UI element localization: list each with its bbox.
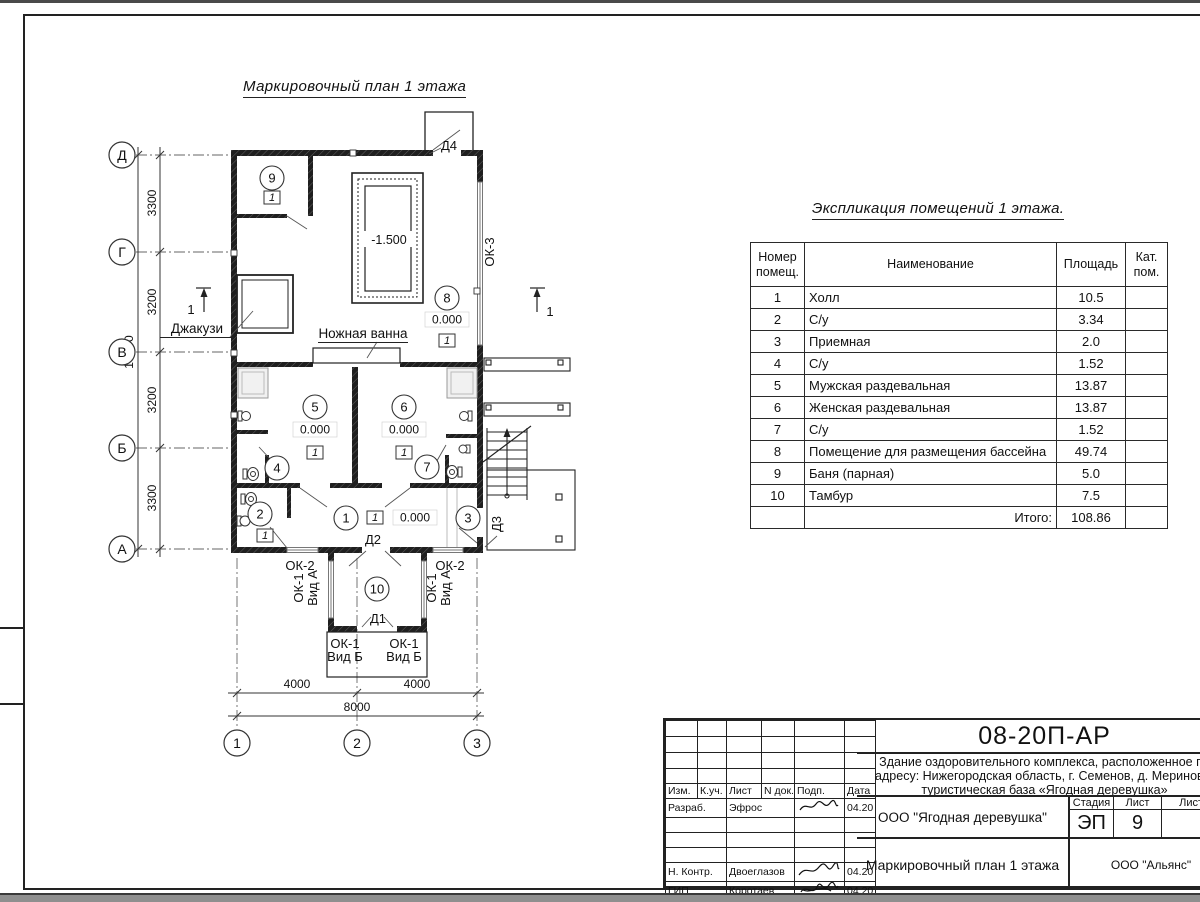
table-row: 1Холл10.5 bbox=[751, 287, 1168, 309]
dim-8000: 8000 bbox=[344, 700, 371, 714]
table-row: 4С/у1.52 bbox=[751, 353, 1168, 375]
label-ok1b-left-2: Вид Б bbox=[327, 649, 363, 664]
sheets-total bbox=[1162, 810, 1200, 839]
table-total-row: Итого: 108.86 bbox=[751, 507, 1168, 529]
table-row: 5Мужская раздевальная13.87 bbox=[751, 375, 1168, 397]
sign-row bbox=[666, 833, 876, 848]
svg-text:-1.500: -1.500 bbox=[371, 233, 406, 247]
project-line-1: Здание оздоровительного комплекса, распо… bbox=[857, 755, 1200, 769]
document-title: Маркировочный план 1 этажа bbox=[857, 839, 1070, 890]
jacuzzi bbox=[237, 275, 293, 333]
table-row: 3Приемная2.0 bbox=[751, 331, 1168, 353]
sign-row: Разраб. Эфрос 04.20 bbox=[666, 799, 876, 818]
signature bbox=[795, 799, 845, 818]
total-label: Итого: bbox=[805, 507, 1057, 529]
explication-table: Номер помещ. Наименование Площадь Кат. п… bbox=[750, 242, 1168, 529]
equipment-labels: Джакузи Ножная ванна bbox=[160, 321, 408, 343]
svg-text:3: 3 bbox=[473, 735, 481, 751]
label-ok1a-right-1: ОК-1 bbox=[424, 573, 439, 602]
sign-row: Н. Контр. Двоеглазов 04.20 bbox=[666, 863, 876, 882]
svg-text:1: 1 bbox=[262, 530, 268, 542]
revision-table: Изм.К.уч. ЛистN док. Подп.Дата Разраб. Э… bbox=[665, 720, 876, 901]
project-line-2: адресу: Нижегородская область, г. Семено… bbox=[857, 769, 1200, 783]
dim-3200-b: 3200 bbox=[145, 386, 159, 413]
svg-text:1: 1 bbox=[372, 512, 378, 524]
svg-text:8: 8 bbox=[443, 291, 450, 306]
sheets-label: Листов bbox=[1162, 797, 1200, 810]
label-ok3: ОК-3 bbox=[482, 237, 497, 266]
svg-text:6: 6 bbox=[400, 400, 407, 415]
svg-text:0.000: 0.000 bbox=[300, 423, 330, 437]
axis-bubbles: Д Г В Б А 1 2 3 bbox=[109, 142, 490, 756]
dim-3300-a: 3300 bbox=[145, 189, 159, 216]
svg-text:2: 2 bbox=[256, 507, 263, 522]
label-jacuzzi: Джакузи bbox=[171, 321, 223, 336]
foot-bath bbox=[313, 348, 400, 363]
window-ok2-left bbox=[287, 548, 318, 553]
dim-3300-b: 3300 bbox=[145, 484, 159, 511]
svg-text:1: 1 bbox=[233, 735, 241, 751]
pool-level: -1.500 bbox=[364, 231, 413, 247]
col-header-area: Площадь bbox=[1057, 243, 1126, 287]
document-code: 08-20П-АР bbox=[857, 720, 1200, 754]
drawing-sheet: { "sheet": { "plan_title": "Маркировочны… bbox=[0, 0, 1200, 900]
svg-text:7: 7 bbox=[423, 460, 430, 475]
signature bbox=[795, 863, 845, 882]
sheet-number: 9 bbox=[1114, 810, 1162, 839]
svg-text:1: 1 bbox=[342, 511, 349, 526]
label-ok1a-left-1: ОК-1 bbox=[291, 573, 306, 602]
sign-row bbox=[666, 818, 876, 833]
svg-text:1: 1 bbox=[444, 335, 450, 347]
revision-header-row: Изм.К.уч. ЛистN док. Подп.Дата bbox=[666, 784, 876, 799]
svg-text:А: А bbox=[117, 541, 127, 557]
organization-name: ООО "Альянс" bbox=[1070, 839, 1200, 890]
project-line-3: туристическая база «Ягодная деревушка» bbox=[857, 783, 1200, 797]
svg-text:0.000: 0.000 bbox=[400, 511, 430, 525]
dim-3200-a: 3200 bbox=[145, 288, 159, 315]
project-description: Здание оздоровительного комплекса, распо… bbox=[857, 754, 1200, 797]
title-block: Изм.К.уч. ЛистN док. Подп.Дата Разраб. Э… bbox=[663, 718, 1200, 888]
table-row: 8Помещение для размещения бассейна49.74 bbox=[751, 441, 1168, 463]
svg-text:1: 1 bbox=[401, 447, 407, 459]
sheet-bottom-edge bbox=[0, 893, 1200, 902]
table-row: 2С/у3.34 bbox=[751, 309, 1168, 331]
table-row: 7С/у1.52 bbox=[751, 419, 1168, 441]
label-ok1b-right-2: Вид Б bbox=[386, 649, 422, 664]
svg-text:0.000: 0.000 bbox=[432, 313, 462, 327]
stage-value: ЭП bbox=[1070, 810, 1114, 839]
svg-text:10: 10 bbox=[370, 582, 384, 597]
label-d2: Д2 bbox=[365, 532, 381, 547]
window-ok2-right bbox=[433, 548, 463, 553]
table-row: 9Баня (парная)5.0 bbox=[751, 463, 1168, 485]
svg-text:5: 5 bbox=[311, 400, 318, 415]
svg-text:3: 3 bbox=[464, 511, 471, 526]
label-d3: Д3 bbox=[489, 516, 504, 532]
col-header-name: Наименование bbox=[805, 243, 1057, 287]
label-ok1a-left-2: Вид А bbox=[305, 570, 320, 606]
client-name: ООО "Ягодная деревушка" bbox=[857, 797, 1070, 839]
svg-text:0.000: 0.000 bbox=[389, 423, 419, 437]
section-mark-1-right: 1 bbox=[546, 304, 553, 319]
col-header-num: Номер помещ. bbox=[751, 243, 805, 287]
svg-text:В: В bbox=[117, 344, 126, 360]
table-row: 10Тамбур7.5 bbox=[751, 485, 1168, 507]
label-d4: Д4 bbox=[441, 138, 457, 153]
svg-text:1: 1 bbox=[312, 447, 318, 459]
label-ok1a-right-2: Вид А bbox=[438, 570, 453, 606]
svg-text:2: 2 bbox=[353, 735, 361, 751]
axis-lines bbox=[136, 155, 477, 729]
sign-row bbox=[666, 848, 876, 863]
section-mark-1-left: 1 bbox=[187, 302, 194, 317]
svg-text:9: 9 bbox=[268, 171, 275, 186]
svg-text:Д: Д bbox=[117, 147, 127, 163]
section-marks bbox=[196, 288, 545, 312]
label-foot-bath: Ножная ванна bbox=[318, 326, 408, 341]
dim-4000-b: 4000 bbox=[404, 677, 431, 691]
label-d1: Д1 bbox=[370, 611, 386, 626]
table-header-row: Номер помещ. Наименование Площадь Кат. п… bbox=[751, 243, 1168, 287]
dim-4000-a: 4000 bbox=[284, 677, 311, 691]
window-ok1-left bbox=[329, 561, 334, 618]
svg-text:1: 1 bbox=[269, 192, 275, 204]
table-row: 6Женская раздевальная13.87 bbox=[751, 397, 1168, 419]
sheet-label: Лист bbox=[1114, 797, 1162, 810]
stage-label: Стадия bbox=[1070, 797, 1114, 810]
col-header-cat: Кат. пом. bbox=[1126, 243, 1168, 287]
total-value: 108.86 bbox=[1057, 507, 1126, 529]
dimension-labels: 3300 3200 3200 3300 13000 4000 4000 8000 bbox=[122, 189, 431, 714]
svg-text:Г: Г bbox=[118, 244, 126, 260]
svg-text:4: 4 bbox=[273, 461, 280, 476]
svg-text:Б: Б bbox=[117, 440, 126, 456]
